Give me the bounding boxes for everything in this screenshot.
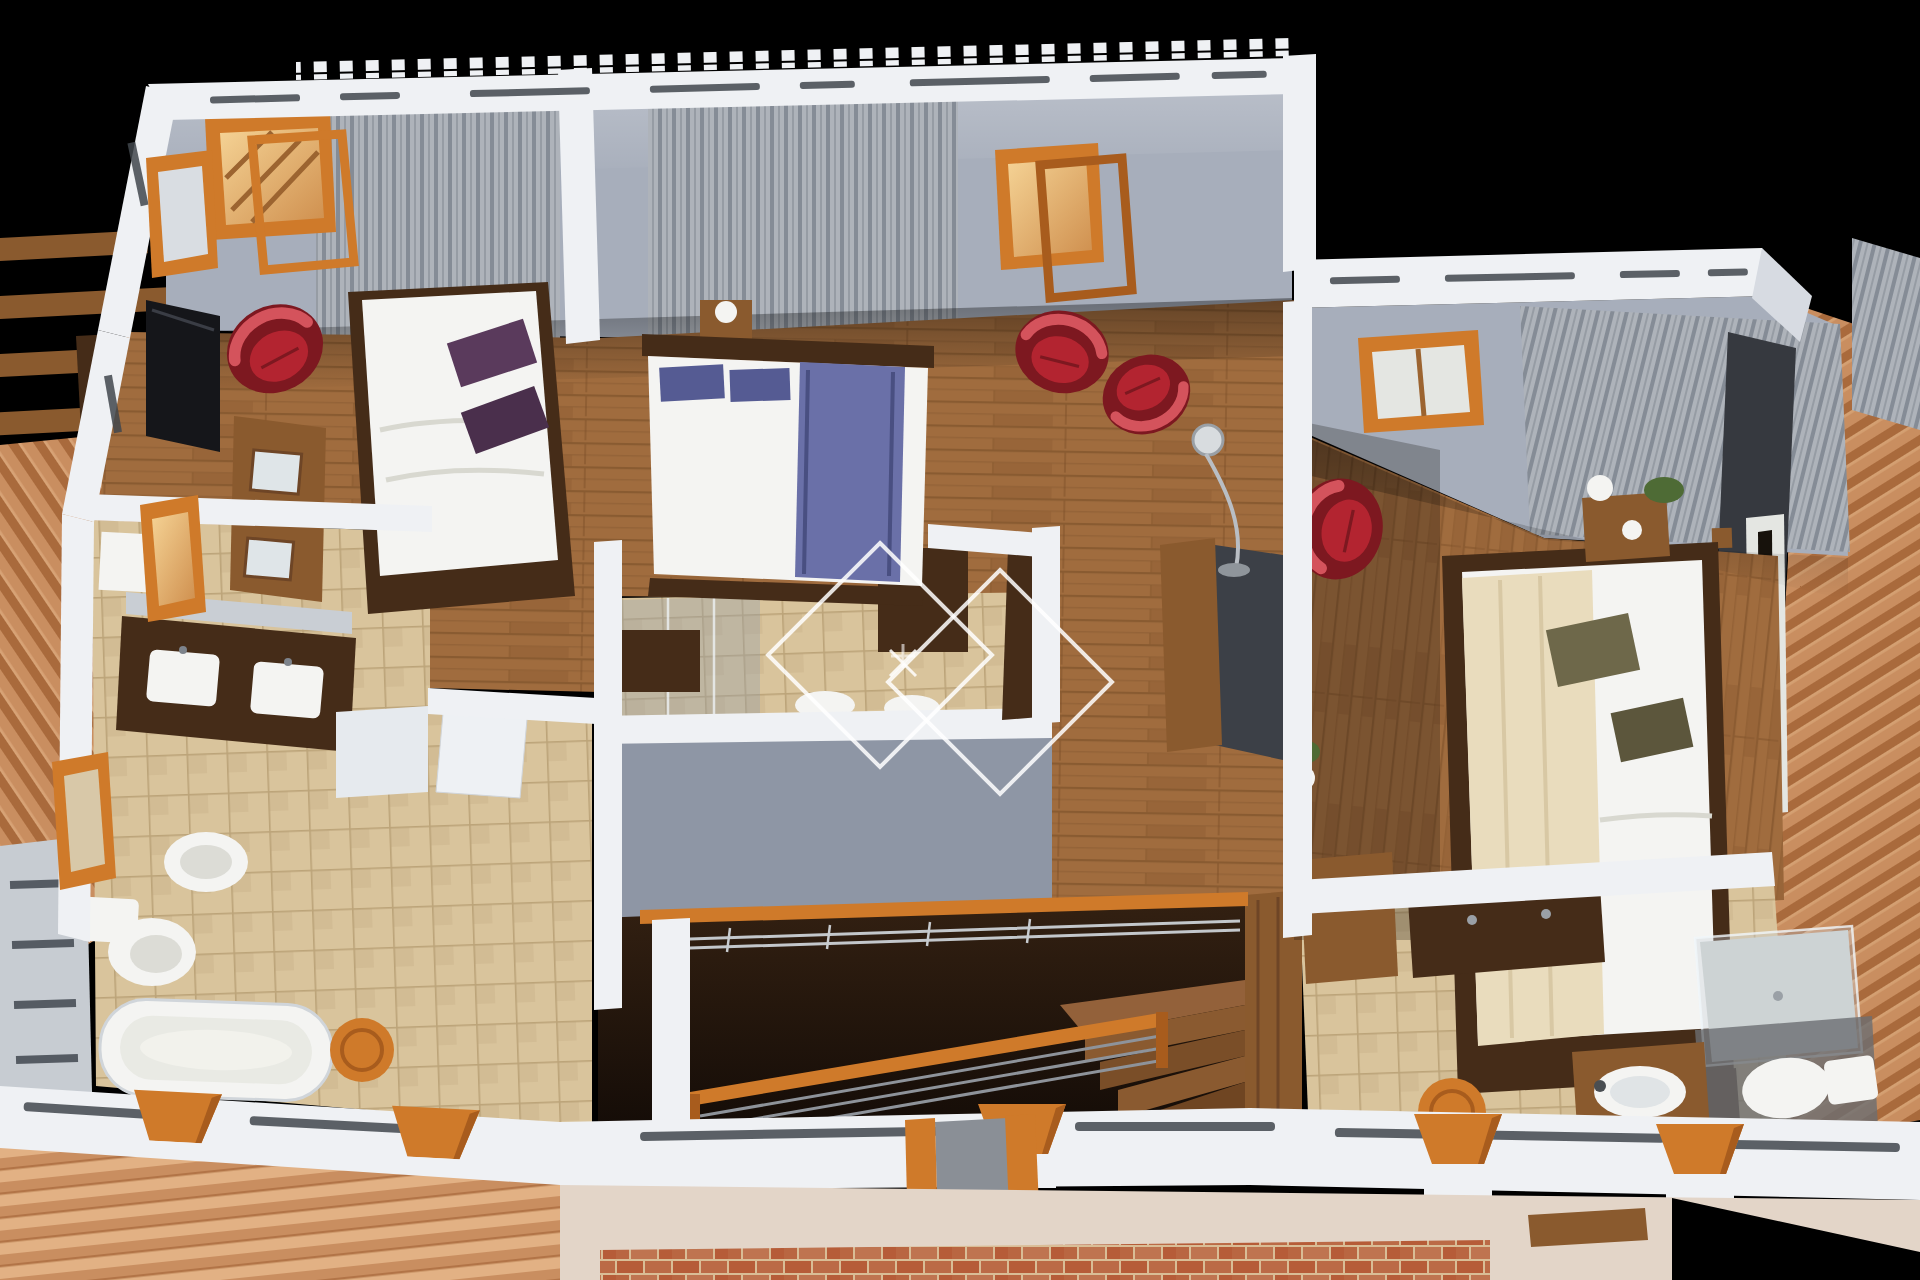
- south-wall-face: [596, 738, 1052, 920]
- white-pillar: [652, 918, 690, 1153]
- sink-right: [250, 661, 324, 719]
- vase: [1622, 520, 1642, 540]
- floorplan-render: [0, 0, 1920, 1280]
- table-lamp: [715, 301, 737, 323]
- floor-lamp-base: [1218, 563, 1250, 577]
- floor-lamp-head: [1193, 425, 1223, 455]
- faucet: [284, 658, 292, 666]
- window-bathroom-left: [52, 752, 116, 890]
- bathtub: [98, 998, 333, 1102]
- sink-left: [146, 649, 220, 707]
- vase: [1587, 475, 1613, 501]
- toilet-tank: [1823, 1055, 1879, 1106]
- low-cabinet: [622, 630, 700, 692]
- wooden-stool: [330, 1018, 394, 1082]
- wall-tv: [146, 300, 220, 452]
- blue-pillow: [729, 368, 790, 402]
- window-left-wall-upper: [146, 150, 218, 278]
- blue-pillow: [659, 364, 725, 401]
- faucet: [179, 646, 187, 654]
- wardrobe-door-panel: [336, 706, 428, 798]
- plant: [1644, 477, 1684, 503]
- picture-frame: [250, 450, 301, 494]
- bathroom-door: [1300, 852, 1398, 984]
- curtains-bedroom-right: [1520, 306, 1850, 552]
- open-door: [1160, 538, 1222, 752]
- window-left-wall-lower: [140, 495, 206, 622]
- faucet: [1594, 1080, 1606, 1092]
- doorway-shadow: [1215, 545, 1283, 760]
- curtains-far-right: [1852, 238, 1920, 430]
- window-wing-top: [1358, 330, 1484, 433]
- picture-frame: [244, 538, 293, 580]
